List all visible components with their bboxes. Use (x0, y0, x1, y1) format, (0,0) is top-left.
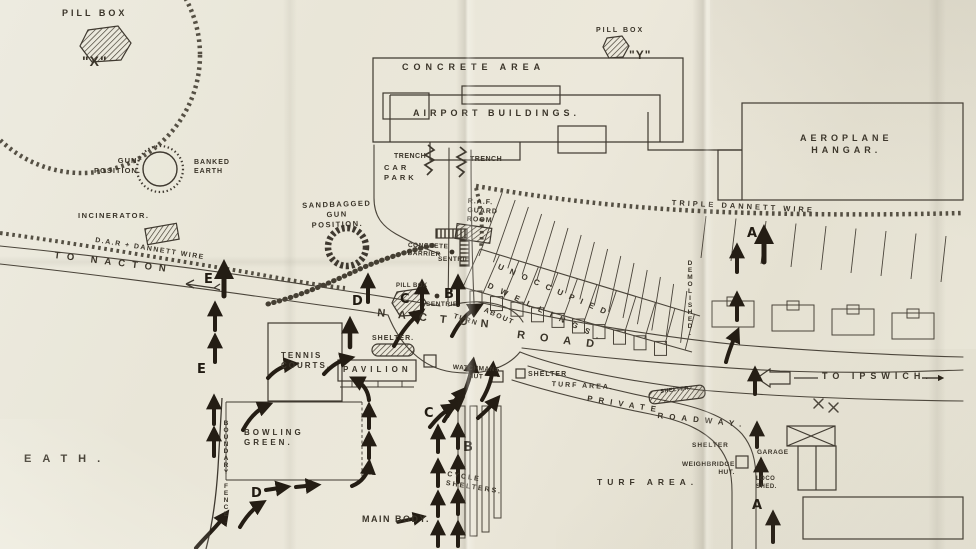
label-airport-buildings: AIRPORT BUILDINGS. (413, 108, 580, 120)
route-marker-c2: C (424, 406, 434, 421)
pavilion-veranda (340, 381, 414, 387)
route-marker-d2: D (251, 486, 262, 501)
pillbox-x-wire-ring (0, 0, 200, 173)
label-pill-box-x: PILL BOX (62, 8, 127, 20)
label-weighbridge-hut: WEIGHBRIDGE HUT. (682, 461, 735, 478)
route-marker-b1: B (444, 287, 454, 302)
sentry-dot-1 (450, 250, 455, 255)
label-sentrie-2: SENTRIE. (426, 301, 460, 309)
route-marker-c1: C (400, 292, 410, 307)
ipswich-lane-north (522, 348, 963, 372)
route-marker-d1: D (352, 294, 363, 309)
label-garage: GARAGE (757, 449, 789, 457)
incinerator-structure (145, 223, 179, 244)
weighbridge-hut-square (736, 456, 748, 468)
sentry-dot-2 (435, 294, 440, 299)
airport-building-right (558, 126, 606, 153)
label-main-body: MAIN BODY. (362, 514, 430, 526)
label-watchmans-hut: WATCHMANS HUT (452, 364, 500, 383)
pillbox-y-hexagon (603, 36, 629, 58)
label-shelter-pavilion: SHELTER. (372, 334, 414, 343)
route-marker-e1: E (204, 272, 213, 287)
label-gun-position: GUN- POSITION. (94, 156, 141, 176)
hangar-step (718, 150, 742, 200)
guardroom-road-west (448, 148, 449, 301)
label-sandbagged-gun: SANDBAGGED GUN POSITION. (302, 199, 372, 231)
label-tennis-courts: TENNIS COURTS. (281, 351, 331, 372)
private-roadway-north (528, 366, 756, 549)
label-concrete-area: CONCRETE AREA (402, 62, 545, 74)
dar-dannett-wire-line (0, 233, 345, 288)
label-to-ipswich: TO IPSWICH. (822, 371, 933, 383)
label-aeroplane-hangar: AEROPLANE HANGAR. (800, 133, 893, 156)
label-trench-1: TRENCH (394, 152, 426, 161)
route-marker-b2: B (463, 440, 473, 455)
label-car-park: CAR PARK (384, 163, 417, 183)
concrete-barrier-bar-1 (436, 229, 467, 238)
label-banked-earth: BANKED EARTH (194, 158, 230, 176)
route-marker-a1: A (747, 226, 757, 241)
label-loco-shed: LOCO SHED. (756, 476, 777, 492)
label-pill-box-y: PILL BOX (596, 26, 644, 35)
folded-paper-defence-map: PILL BOX "X" PILL BOX "Y" GUN- POSITION.… (0, 0, 976, 549)
trench-zigzag-2 (457, 147, 466, 177)
map-linework (0, 0, 976, 549)
shelter-turf-square (516, 369, 525, 378)
label-incinerator: INCINERATOR. (78, 211, 149, 221)
label-demolished: DEMOLISHED. (686, 260, 693, 337)
label-boundary-fence: BOUNDARY FENCE. (222, 420, 229, 525)
label-shelter-turf: SHELTER (528, 370, 567, 379)
level-crossing-marks (814, 399, 838, 412)
sandbagged-gun-ring (328, 228, 366, 266)
label-x-marker: "X" (82, 52, 108, 70)
label-sentrie-1: SENTRIE (438, 256, 470, 264)
label-shelter-right: SHELTER (692, 442, 729, 450)
label-heath: EATH. (24, 452, 111, 466)
label-raf-guard-room: R.A.F. GUARD ROOM (467, 197, 499, 226)
label-turf-area-2: TURF AREA. (597, 477, 698, 488)
label-bowling-green: BOWLING GREEN. (244, 428, 304, 449)
buildings (80, 26, 963, 549)
label-pavilion: PAVILION (343, 365, 412, 375)
route-marker-e2: E (197, 362, 206, 377)
route-marker-a2: A (752, 498, 762, 513)
garage-block (787, 426, 836, 490)
label-pill-box-small: PILL BOX (396, 283, 428, 291)
yard-rect-bottom-right (803, 497, 963, 539)
label-trench-2: TRENCH (470, 155, 502, 164)
label-y-marker: "Y" (629, 48, 651, 64)
hangar-annex (648, 112, 742, 150)
